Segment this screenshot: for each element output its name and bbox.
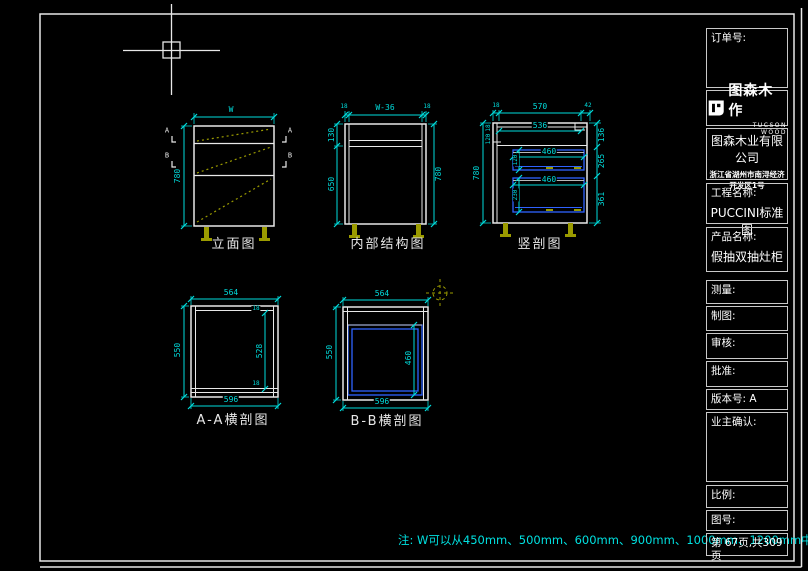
company-name: 图森木业有限公司 bbox=[707, 132, 787, 166]
dim-internal-right: 780 bbox=[435, 166, 443, 182]
dim-internal-top-right: 18 bbox=[422, 104, 431, 110]
project-name-label: 工程名称: bbox=[707, 184, 787, 200]
dim-internal-left-bottom: 650 bbox=[328, 176, 336, 192]
dim-drawer2-width: 460 bbox=[541, 176, 557, 184]
owner-confirm-label: 业主确认: bbox=[707, 413, 787, 429]
company-address-line1: 浙江省湖州市南浔经济 bbox=[707, 169, 787, 180]
dim-vsection-left-small-b: 120 bbox=[486, 133, 492, 146]
measure-label: 测量: bbox=[707, 281, 787, 297]
field-approve: 批准: bbox=[706, 361, 788, 387]
field-owner-confirm: 业主确认: bbox=[706, 412, 788, 482]
drawing-number-label: 图号: bbox=[707, 511, 787, 527]
dim-vsection-right-top: 136 bbox=[598, 127, 606, 143]
dim-elevation-height: 780 bbox=[174, 168, 182, 184]
dim-drawer1-width: 460 bbox=[541, 148, 557, 156]
section-marker-a-left: A bbox=[165, 128, 169, 135]
tucson-wood-logo-icon bbox=[707, 98, 725, 118]
field-review: 审核: bbox=[706, 333, 788, 359]
dim-bb-bottom: 596 bbox=[374, 398, 390, 406]
dim-internal-top-center: W-36 bbox=[374, 104, 395, 112]
dim-vsection-right-bottom: 361 bbox=[598, 191, 606, 207]
dim-drawer1-height: 120 bbox=[513, 154, 519, 167]
field-project-name: 工程名称: PUCCINI标准图 bbox=[706, 183, 788, 224]
dim-vsection-top-right: 42 bbox=[583, 103, 592, 109]
drawing-canvas bbox=[0, 0, 808, 571]
dim-vsection-left: 780 bbox=[473, 165, 481, 181]
field-draft: 制图: bbox=[706, 306, 788, 331]
scale-label: 比例: bbox=[707, 486, 787, 502]
drawer-boxes bbox=[348, 150, 584, 395]
dim-aa-top: 564 bbox=[223, 289, 239, 297]
field-scale: 比例: bbox=[706, 485, 788, 508]
field-measure: 测量: bbox=[706, 280, 788, 304]
dim-aa-right-mid: 528 bbox=[256, 343, 264, 359]
view-label-aa: A-A横剖图 bbox=[197, 409, 270, 428]
version-value: A bbox=[749, 393, 756, 405]
detail-callout-icon bbox=[426, 279, 454, 307]
logo-name: 图森木作 bbox=[728, 80, 787, 120]
section-marker-brackets bbox=[172, 136, 286, 167]
dim-drawer2-height: 230 bbox=[513, 189, 519, 202]
dim-internal-left-top: 130 bbox=[328, 127, 336, 143]
crosshair-mark bbox=[123, 4, 220, 95]
sheet-border bbox=[40, 8, 802, 567]
approve-label: 批准: bbox=[707, 362, 787, 378]
review-label: 审核: bbox=[707, 334, 787, 350]
field-page-info: 第 67页,共309页 bbox=[706, 533, 788, 556]
draft-label: 制图: bbox=[707, 307, 787, 323]
field-company: 图森木业有限公司 浙江省湖州市南浔经济 开发区1号 bbox=[706, 128, 788, 180]
view-label-vsection: 竖剖图 bbox=[517, 233, 562, 252]
dim-vsection-left-small-a: 18 bbox=[486, 123, 492, 132]
field-order-number: 订单号: bbox=[706, 28, 788, 88]
dim-aa-right-bottom: 18 bbox=[251, 381, 260, 387]
section-marker-b-right: B bbox=[288, 153, 292, 160]
view-label-elevation: 立面图 bbox=[211, 233, 256, 252]
product-name-label: 产品名称: bbox=[707, 228, 787, 244]
dim-vsection-right-mid: 265 bbox=[598, 153, 606, 169]
internal-outline bbox=[345, 124, 426, 224]
dim-bb-left: 550 bbox=[326, 344, 334, 360]
dimension-lines bbox=[181, 110, 601, 411]
dim-elevation-width: W bbox=[228, 106, 235, 114]
version-label: 版本号: bbox=[711, 393, 746, 405]
field-product-name: 产品名称: 假抽双抽灶柜 bbox=[706, 227, 788, 272]
section-marker-a-right: A bbox=[288, 128, 292, 135]
view-label-internal: 内部结构图 bbox=[350, 233, 425, 252]
dim-vsection-top-center: 570 bbox=[532, 103, 548, 111]
dim-internal-top-left: 18 bbox=[339, 104, 348, 110]
product-name-value: 假抽双抽灶柜 bbox=[707, 248, 787, 265]
field-drawing-number: 图号: bbox=[706, 510, 788, 531]
dim-vsection-top-left: 18 bbox=[491, 103, 500, 109]
dim-aa-right-top: 18 bbox=[251, 306, 260, 312]
dim-bb-inner: 460 bbox=[405, 350, 413, 366]
company-logo: 图森木作 TUCSON WOOD bbox=[706, 90, 788, 126]
drawing-sheet: W 780 A B A B 18 W-36 18 130 650 780 18 … bbox=[0, 0, 808, 571]
dim-aa-left: 550 bbox=[174, 342, 182, 358]
order-number-label: 订单号: bbox=[707, 29, 787, 45]
slide-marks bbox=[546, 167, 581, 211]
dim-aa-bottom: 596 bbox=[223, 396, 239, 404]
bb-outline bbox=[343, 307, 428, 400]
elevation-outline bbox=[194, 126, 274, 226]
field-version: 版本号: A bbox=[706, 389, 788, 410]
dim-bb-top: 564 bbox=[374, 290, 390, 298]
view-label-bb: B-B横剖图 bbox=[350, 410, 423, 429]
dim-vsection-inner-width: 536 bbox=[532, 122, 548, 130]
page-info-text: 第 67页,共309页 bbox=[707, 534, 787, 562]
section-marker-b-left: B bbox=[165, 153, 169, 160]
